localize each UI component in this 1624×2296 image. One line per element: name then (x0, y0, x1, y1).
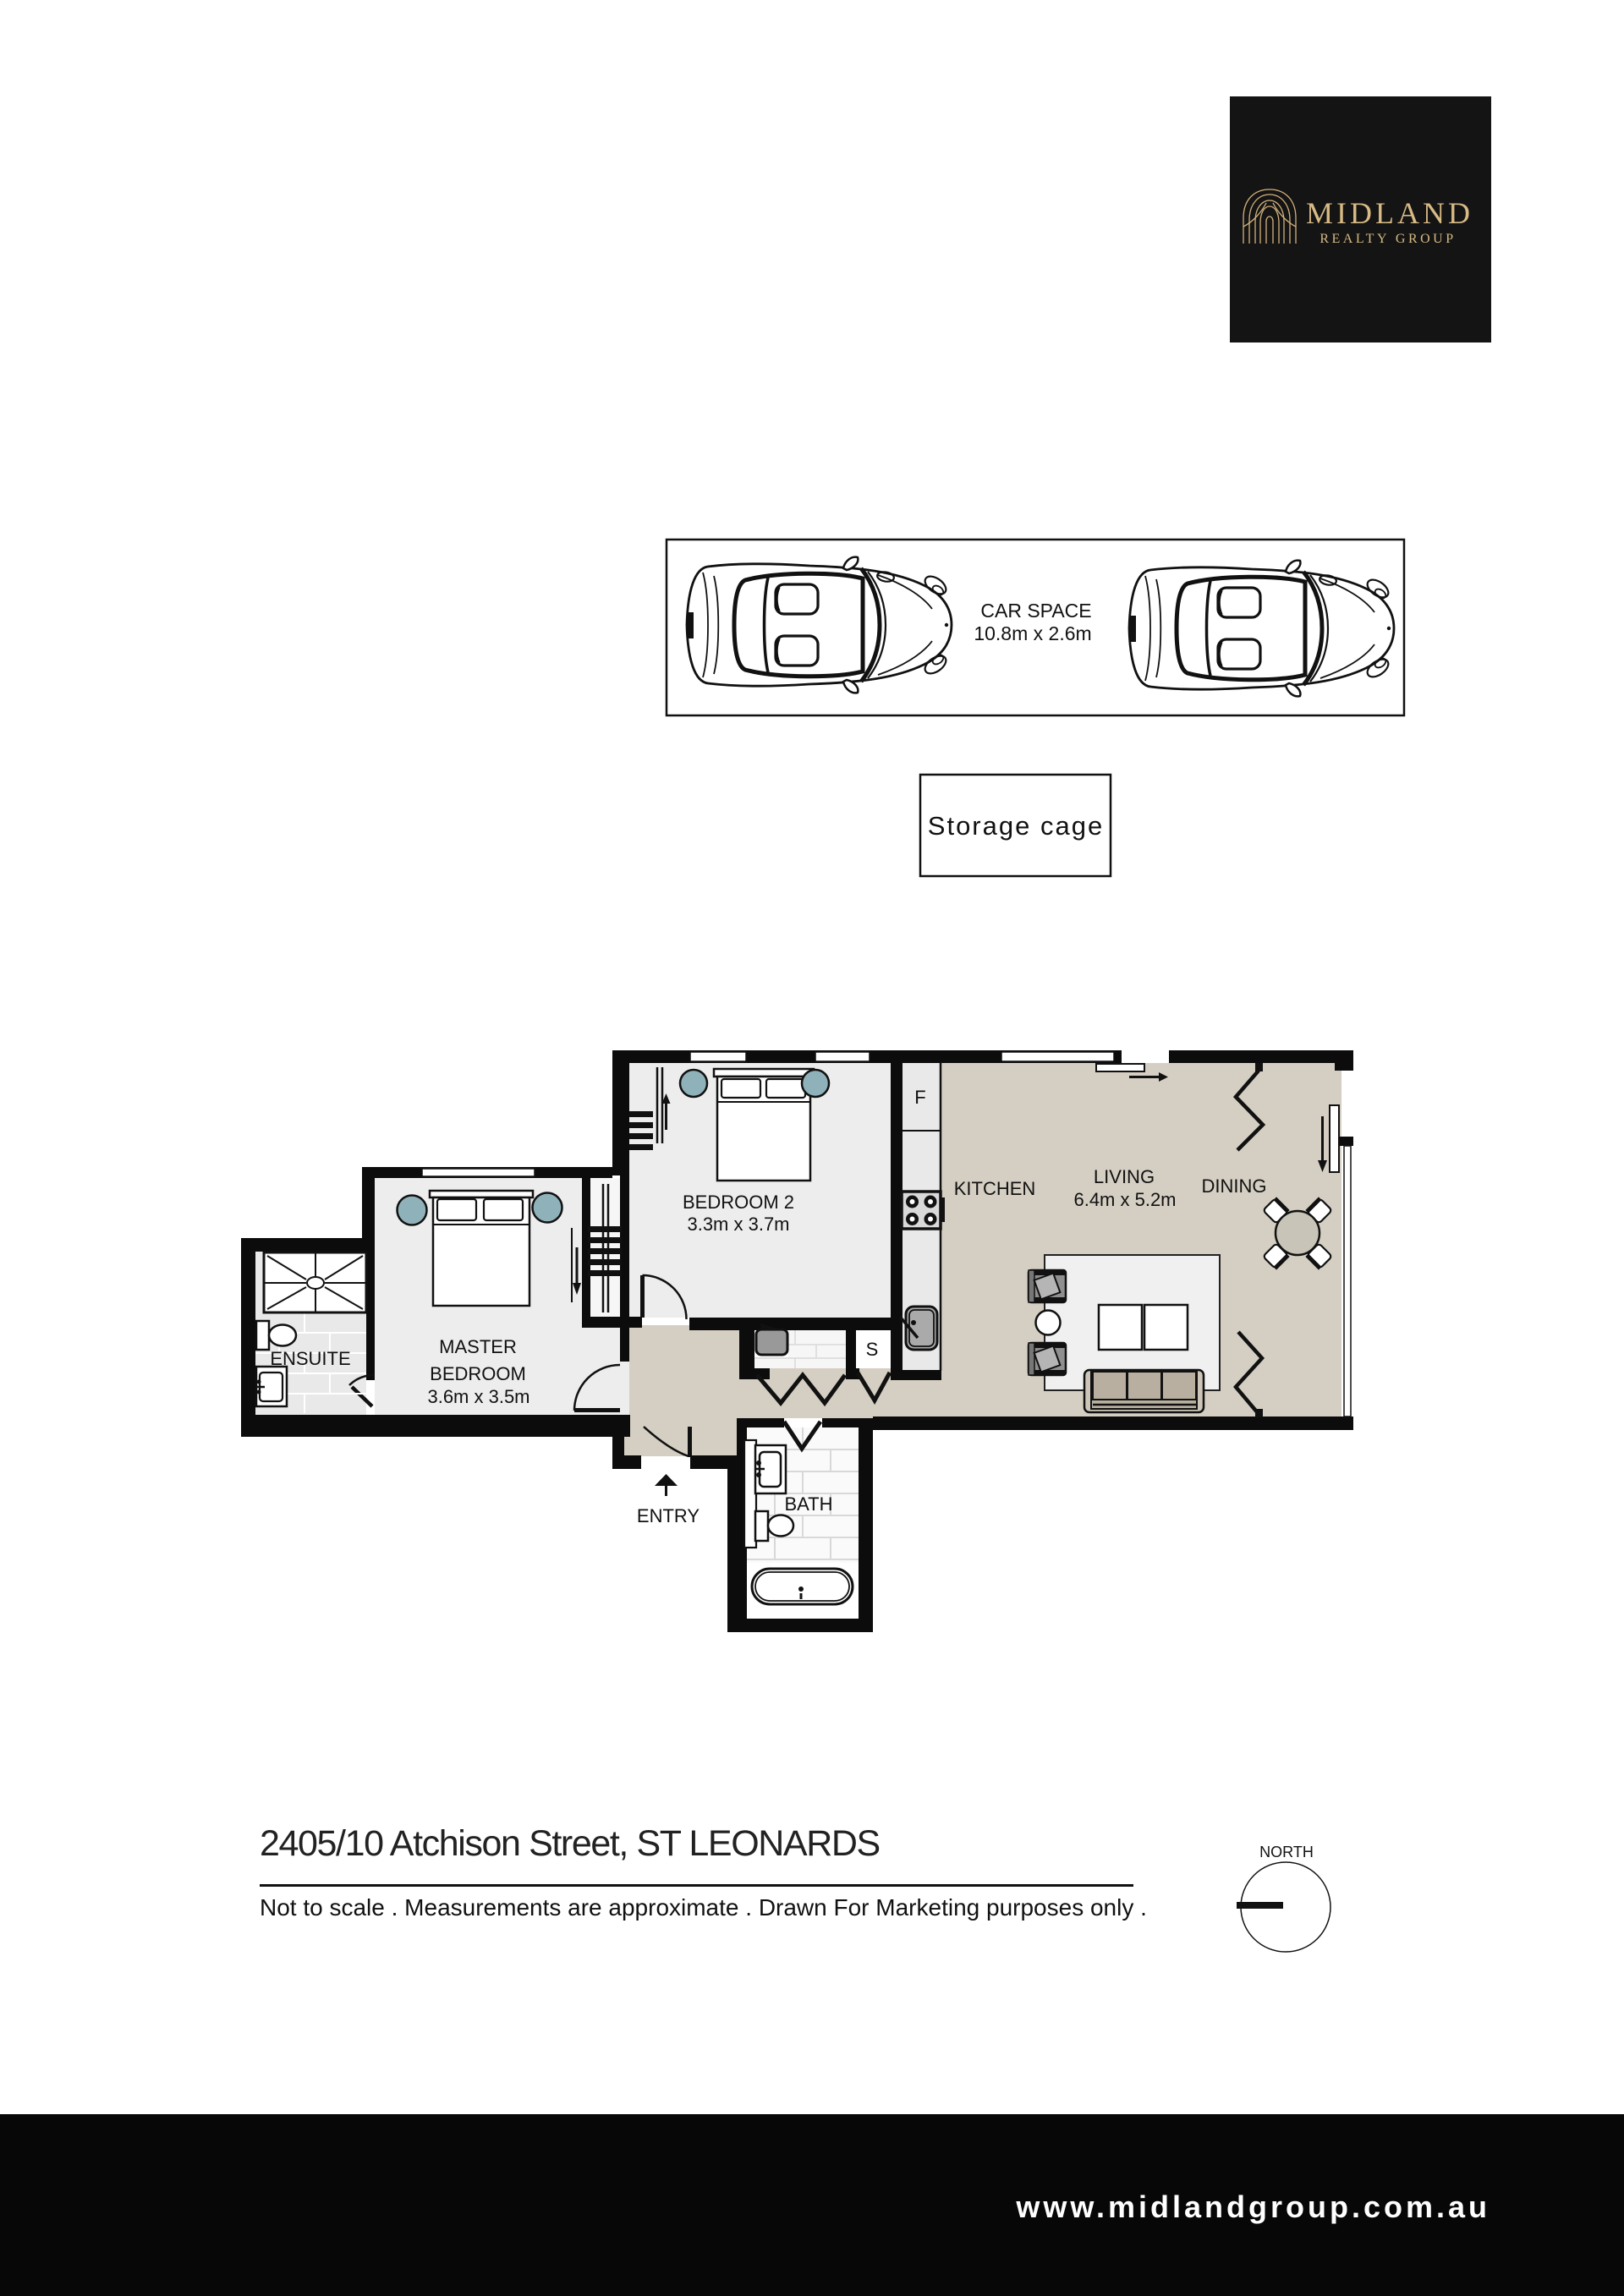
svg-text:Storage cage: Storage cage (928, 811, 1104, 841)
svg-text:6.4m x 5.2m: 6.4m x 5.2m (1073, 1189, 1176, 1210)
svg-text:ENTRY: ENTRY (637, 1505, 700, 1526)
svg-text:MASTER: MASTER (439, 1336, 517, 1357)
svg-text:3.3m x 3.7m: 3.3m x 3.7m (687, 1214, 789, 1235)
svg-text:www.midlandgroup.com.au: www.midlandgroup.com.au (1015, 2189, 1490, 2224)
svg-text:BATH: BATH (784, 1493, 832, 1515)
svg-text:BEDROOM: BEDROOM (430, 1363, 526, 1384)
svg-text:BEDROOM 2: BEDROOM 2 (683, 1192, 794, 1213)
svg-text:DINING: DINING (1202, 1175, 1267, 1197)
svg-text:REALTY GROUP: REALTY GROUP (1319, 232, 1456, 246)
svg-text:CAR SPACE: CAR SPACE (980, 600, 1091, 622)
svg-text:S: S (866, 1339, 879, 1360)
svg-text:2405/10 Atchison Street, ST LE: 2405/10 Atchison Street, ST LEONARDS (260, 1823, 880, 1864)
svg-text:LIVING: LIVING (1094, 1166, 1155, 1187)
svg-text:F: F (914, 1087, 925, 1108)
svg-text:ENSUITE: ENSUITE (270, 1348, 350, 1369)
svg-text:KITCHEN: KITCHEN (954, 1178, 1036, 1199)
svg-text:MIDLAND: MIDLAND (1306, 196, 1473, 230)
svg-text:Not to scale . Measurements ar: Not to scale . Measurements are approxim… (260, 1894, 1147, 1921)
svg-text:NORTH: NORTH (1259, 1844, 1314, 1860)
svg-text:10.8m x 2.6m: 10.8m x 2.6m (974, 622, 1091, 644)
svg-text:3.6m x 3.5m: 3.6m x 3.5m (427, 1386, 529, 1407)
